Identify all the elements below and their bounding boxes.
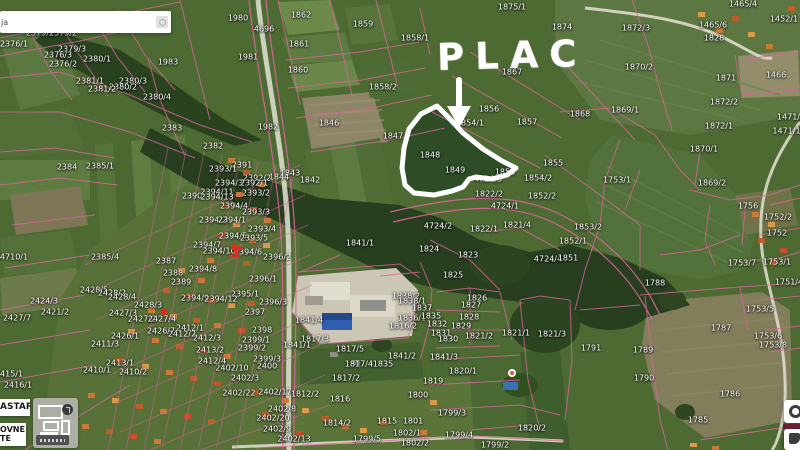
plac-annotation-text: PLAC [436,32,588,79]
legend-label-bar[interactable] [36,435,69,445]
map-viewport[interactable]: 2379/12379/22376/12379/32376/32376/22380… [0,0,800,450]
map-control-button-locate[interactable] [784,400,800,423]
map-control-button-layers[interactable] [784,429,800,450]
legend-small-rect-icon [43,421,59,431]
target-icon [789,405,800,418]
help-icon [62,404,73,415]
annotation-layer [0,0,800,450]
legend-label-text [40,439,65,442]
red-marker-icon [160,243,244,316]
layer-button-line1: OVNE [0,425,26,434]
layer-button-line2: TE [0,434,26,443]
legend-widget[interactable] [33,398,78,448]
legend-rect-icon [38,405,63,419]
search-icon [159,19,166,26]
layers-icon [789,433,800,444]
ground-object [508,369,516,377]
layer-button-osnovne-karte[interactable]: OVNE TE [0,423,26,446]
search-box[interactable]: ja [0,11,171,33]
search-query-text: ja [1,18,8,27]
legend-side-rect-icon [61,420,70,435]
search-button[interactable] [156,16,168,28]
layer-button-katastar[interactable]: ASTAR [0,399,30,416]
